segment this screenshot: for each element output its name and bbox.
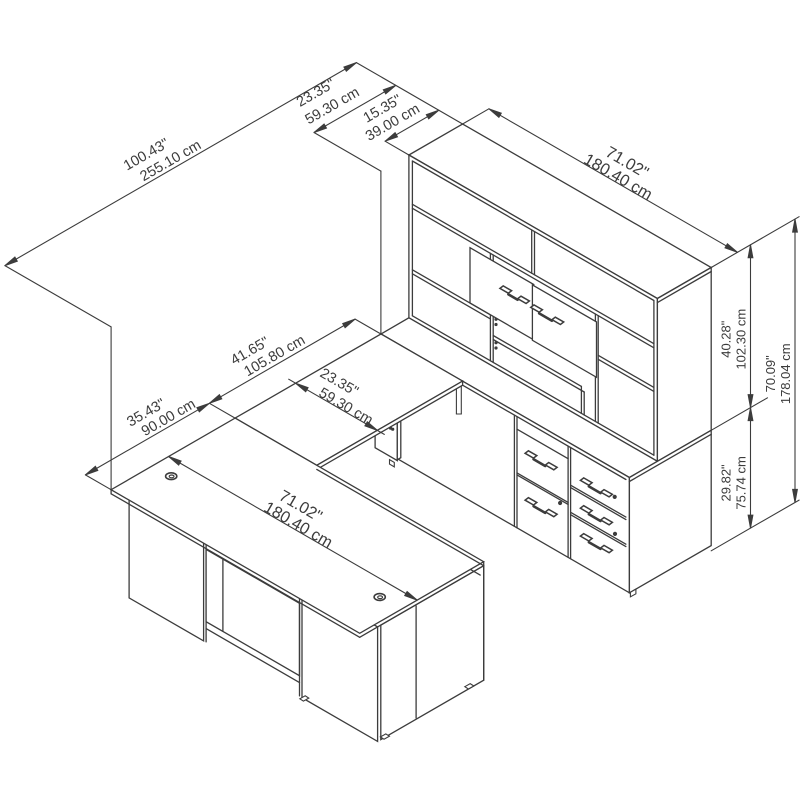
svg-text:40.28": 40.28" bbox=[719, 320, 734, 358]
svg-text:75.74 cm: 75.74 cm bbox=[734, 456, 749, 509]
svg-text:178.04 cm: 178.04 cm bbox=[778, 343, 793, 404]
svg-text:29.82": 29.82" bbox=[719, 464, 734, 502]
svg-text:102.30 cm: 102.30 cm bbox=[734, 309, 749, 370]
svg-text:70.09": 70.09" bbox=[763, 355, 778, 393]
